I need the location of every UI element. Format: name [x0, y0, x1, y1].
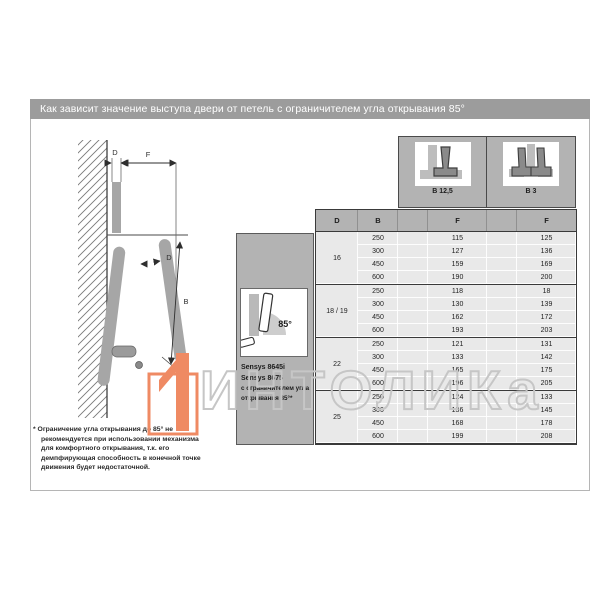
cabinet-panel	[112, 182, 121, 233]
value-cell	[487, 311, 517, 324]
value-cell: 250	[358, 338, 398, 351]
value-cell: 145	[517, 404, 576, 417]
variant-label: B 3	[487, 188, 575, 195]
value-cell	[398, 298, 428, 311]
hinge-pivot	[136, 362, 143, 369]
value-cell: 600	[358, 430, 398, 443]
value-cell: 115	[428, 232, 487, 245]
value-cell: 136	[428, 404, 487, 417]
value-cell: 133	[428, 351, 487, 364]
value-cell: 450	[358, 258, 398, 271]
angle-limit-hinge-icon: 85°	[240, 288, 308, 357]
value-cell	[487, 391, 517, 404]
d-value-cell: 22	[316, 338, 358, 390]
value-cell	[398, 232, 428, 245]
value-cell	[398, 271, 428, 284]
footnote-line: для комфортного открывания, т.к. его	[33, 444, 241, 454]
table-group: 25250124133300136145450168178600199208	[316, 391, 576, 443]
product-box: 85° Sensys 8645iSensys 8675с ограничител…	[236, 233, 314, 445]
value-cell	[487, 364, 517, 377]
table-group: 16250115125300127136450159169600190200	[316, 232, 576, 285]
door-protrusion-diagram: D F D B	[55, 128, 235, 428]
dim-label-d-mid: D	[166, 253, 172, 262]
value-cell	[398, 324, 428, 337]
value-cell: 200	[517, 271, 576, 284]
value-cell: 300	[358, 245, 398, 258]
value-cell	[487, 298, 517, 311]
page-title: Как зависит значение выступа двери от пе…	[30, 99, 590, 119]
dim-label-d-top: D	[112, 148, 118, 157]
hinge-variant-boxes: B 12,5 B 3	[398, 136, 576, 208]
table-group: 22250121131300133142450165175600196205	[316, 338, 576, 391]
value-cell	[398, 258, 428, 271]
value-cell: 203	[517, 324, 576, 337]
value-cell	[487, 271, 517, 284]
value-cell	[398, 338, 428, 351]
value-cell	[398, 417, 428, 430]
product-caption-line: с ограничителем угла	[241, 384, 311, 394]
value-cell: 18	[517, 285, 576, 298]
value-cell: 600	[358, 271, 398, 284]
value-cell: 168	[428, 417, 487, 430]
footnote: * Ограничение угла открывания до 85° нер…	[33, 425, 241, 473]
value-cell: 139	[517, 298, 576, 311]
hinge-twin-icon	[503, 142, 559, 186]
value-cell: 600	[358, 377, 398, 390]
value-cell: 130	[428, 298, 487, 311]
value-cell: 142	[517, 351, 576, 364]
value-cell	[398, 311, 428, 324]
table-group: 18 / 19250118183001301394501621726001932…	[316, 285, 576, 338]
angle-label: 85°	[278, 319, 292, 329]
hinge-arm	[112, 346, 136, 357]
hinge-overlay-icon	[415, 142, 471, 186]
value-cell: 118	[428, 285, 487, 298]
value-cell: 205	[517, 377, 576, 390]
value-cell: 162	[428, 311, 487, 324]
dim-label-f: F	[146, 150, 151, 159]
value-cell: 178	[517, 417, 576, 430]
value-cell: 300	[358, 298, 398, 311]
value-cell: 131	[517, 338, 576, 351]
value-cell: 208	[517, 430, 576, 443]
value-cell: 127	[428, 245, 487, 258]
value-cell: 300	[358, 351, 398, 364]
value-cell: 250	[358, 391, 398, 404]
value-cell: 133	[517, 391, 576, 404]
spec-table-header: DBFF	[316, 210, 576, 232]
value-cell	[487, 258, 517, 271]
value-cell	[398, 364, 428, 377]
value-cell	[487, 245, 517, 258]
d-value-cell: 25	[316, 391, 358, 443]
value-cell: 600	[358, 324, 398, 337]
product-model-line: Sensys 8675	[241, 373, 311, 384]
footnote-line: рекомендуется при использовании механизм…	[33, 435, 241, 445]
value-cell: 250	[358, 232, 398, 245]
value-cell: 125	[517, 232, 576, 245]
product-caption-line: открывания 85°*	[241, 394, 311, 404]
product-text: Sensys 8645iSensys 8675с ограничителем у…	[241, 362, 311, 403]
value-cell: 124	[428, 391, 487, 404]
hinge-variant-b125: B 12,5	[398, 136, 487, 208]
value-cell	[487, 232, 517, 245]
hinge-variant-b3: B 3	[487, 136, 576, 208]
value-cell: 190	[428, 271, 487, 284]
value-cell	[487, 430, 517, 443]
value-cell: 450	[358, 417, 398, 430]
value-cell: 121	[428, 338, 487, 351]
value-cell	[398, 245, 428, 258]
dim-arrow	[154, 261, 160, 262]
value-cell: 300	[358, 404, 398, 417]
value-cell	[398, 404, 428, 417]
value-cell	[487, 417, 517, 430]
value-cell	[398, 351, 428, 364]
value-cell	[398, 391, 428, 404]
value-cell: 175	[517, 364, 576, 377]
value-cell: 450	[358, 364, 398, 377]
spec-table-body: 1625011512530012713645015916960019020018…	[316, 232, 576, 443]
footnote-line: демпфирующая способность в конечной точк…	[33, 454, 241, 464]
footnote-line: * Ограничение угла открывания до 85° не	[33, 425, 241, 435]
value-cell: 172	[517, 311, 576, 324]
value-cell: 159	[428, 258, 487, 271]
value-cell: 196	[428, 377, 487, 390]
column-header	[398, 210, 428, 231]
dim-tick	[162, 357, 176, 369]
dim-label-b: B	[183, 297, 188, 306]
value-cell: 193	[428, 324, 487, 337]
column-header: B	[358, 210, 398, 231]
column-header: D	[316, 210, 358, 231]
value-cell: 250	[358, 285, 398, 298]
value-cell: 169	[517, 258, 576, 271]
variant-label: B 12,5	[399, 188, 486, 195]
value-cell	[398, 377, 428, 390]
spec-table: DBFF 16250115125300127136450159169600190…	[315, 209, 577, 445]
value-cell: 165	[428, 364, 487, 377]
d-value-cell: 18 / 19	[316, 285, 358, 337]
column-header: F	[428, 210, 487, 231]
column-header: F	[517, 210, 576, 231]
value-cell	[487, 285, 517, 298]
column-header	[487, 210, 517, 231]
value-cell: 450	[358, 311, 398, 324]
product-model-line: Sensys 8645i	[241, 362, 311, 373]
value-cell	[487, 351, 517, 364]
value-cell: 199	[428, 430, 487, 443]
footnote-line: движения будет недостаточной.	[33, 463, 241, 473]
value-cell	[487, 404, 517, 417]
value-cell	[487, 377, 517, 390]
d-value-cell: 16	[316, 232, 358, 284]
value-cell	[398, 285, 428, 298]
value-cell	[487, 338, 517, 351]
value-cell	[398, 430, 428, 443]
value-cell	[487, 324, 517, 337]
value-cell: 136	[517, 245, 576, 258]
